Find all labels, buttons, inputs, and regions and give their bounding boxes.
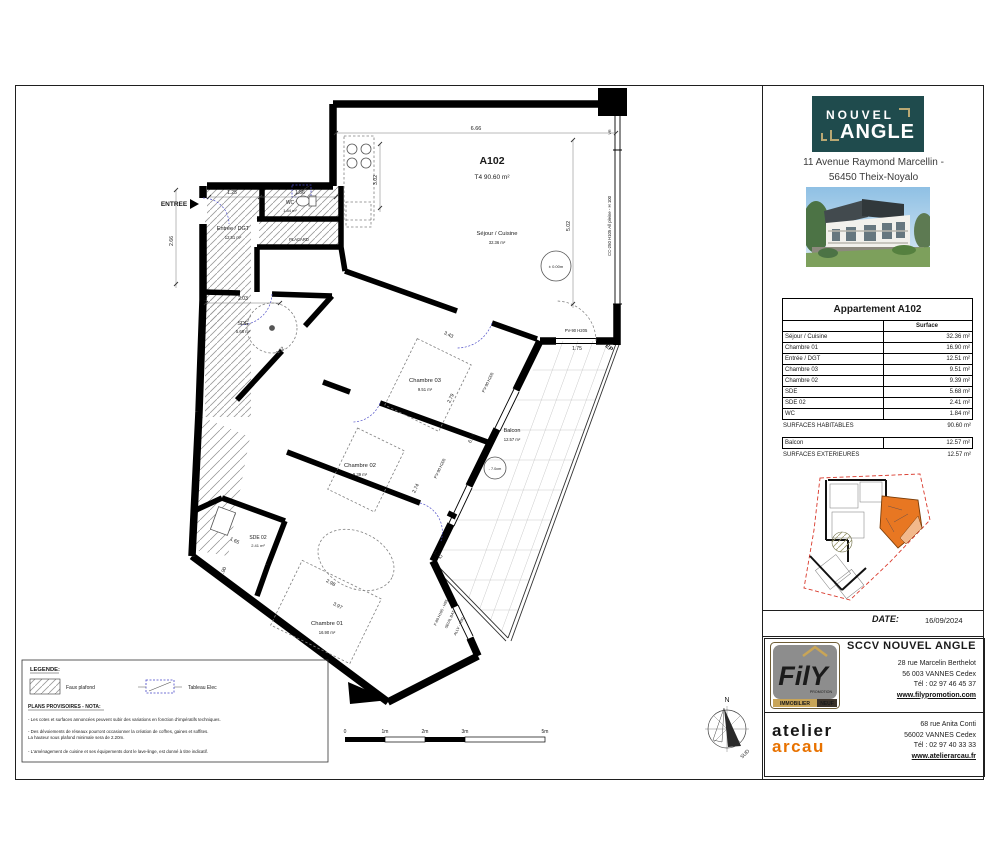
scale-bar: 0 1m 2m 3m 5m — [344, 729, 549, 742]
level-sejour: ± 0.00m — [549, 264, 564, 269]
corner-bracket-icon — [899, 108, 910, 117]
svg-text:Chambre 02: Chambre 02 — [344, 463, 376, 469]
svg-text:3.97: 3.97 — [332, 601, 344, 611]
nouvel-angle-logo: NOUVEL ANGLE — [812, 96, 924, 152]
svg-text:2.74: 2.74 — [411, 483, 421, 495]
fily-logo: FilY PROMOTION IMMOBILIER NEUF — [769, 641, 841, 710]
entry-arrow: ENTREE — [161, 199, 199, 209]
svg-text:PV-90 H205: PV-90 H205 — [565, 328, 588, 333]
fily-website-link[interactable]: www.filypromotion.com — [843, 691, 976, 702]
svg-text:12.51 m²: 12.51 m² — [225, 235, 242, 240]
svg-text:SUD: SUD — [739, 748, 751, 760]
balcony-row: Balcon 12.57 m² — [783, 438, 972, 448]
l-bracket-icon — [830, 130, 839, 141]
svg-text:FilY: FilY — [778, 661, 830, 691]
surfaces-habitables-row: SURFACES HABITABLES90.60 m² — [782, 420, 973, 432]
tableau-elec-label: Tableau Elec — [188, 685, 217, 691]
svg-text:PV-90 H205: PV-90 H205 — [433, 457, 447, 479]
legend-title: LEGENDE: — [30, 667, 60, 673]
svg-text:SDE 02: SDE 02 — [249, 535, 266, 541]
svg-text:Balcon: Balcon — [504, 428, 521, 434]
svg-text:WC: WC — [286, 200, 295, 206]
surfaces-exterieures-row: SURFACES EXTERIEURES12.57 m² — [782, 449, 973, 461]
table-row: Séjour / Cuisine32.36 m² — [783, 332, 972, 343]
north-compass-icon: N SUD — [705, 697, 751, 760]
svg-text:- L'aménagement de cuisine et: - L'aménagement de cuisine et ses équipe… — [28, 749, 208, 754]
table-row: Entrée / DGT12.51 m² — [783, 354, 972, 365]
table-row: Chambre 0116.90 m² — [783, 343, 972, 354]
table-row: Chambre 039.51 m² — [783, 365, 972, 376]
table-row: SDE5.68 m² — [783, 387, 972, 398]
arcau-website-link[interactable]: www.atelierarcau.fr — [843, 752, 976, 763]
svg-text:- Des dévoiements de réseaux p: - Des dévoiements de réseaux pourront oc… — [28, 729, 208, 734]
svg-text:3.02: 3.02 — [275, 346, 286, 357]
tableau-elec-swatch — [138, 680, 182, 693]
svg-text:5.68 m²: 5.68 m² — [236, 329, 251, 334]
svg-text:12.57 m²: 12.57 m² — [504, 437, 521, 442]
table-row: Chambre 029.39 m² — [783, 376, 972, 387]
titleblock-divider — [762, 85, 763, 779]
svg-text:La hauteur sous plafond minima: La hauteur sous plafond minimale sera de… — [28, 735, 124, 740]
svg-text:CC-250 H105 All pleine - H 100: CC-250 H105 All pleine - H 100 — [607, 195, 612, 256]
svg-text:6.66: 6.66 — [471, 126, 482, 132]
building-photo — [806, 187, 930, 267]
surface-table: Appartement A102 Surface Séjour / Cuisin… — [782, 298, 973, 461]
svg-text:32.36 m²: 32.36 m² — [489, 240, 506, 245]
svg-text:IMMOBILIER: IMMOBILIER — [780, 701, 810, 707]
svg-text:1.84 m²: 1.84 m² — [283, 208, 297, 213]
table-row: WC1.84 m² — [783, 409, 972, 420]
l-bracket-icon — [821, 133, 827, 141]
svg-text:SEUIL BAT: SEUIL BAT — [444, 610, 456, 630]
date-row-top-line — [762, 610, 983, 611]
brand-line2: ANGLE — [840, 123, 915, 141]
site-key-plan — [790, 470, 960, 608]
svg-text:0: 0 — [344, 729, 347, 735]
svg-text:2.41 m²: 2.41 m² — [251, 543, 265, 548]
entry-arrow-icon — [190, 199, 199, 209]
svg-text:1.25: 1.25 — [227, 190, 237, 196]
svg-text:NEUF: NEUF — [820, 701, 834, 707]
svg-text:9.39 m²: 9.39 m² — [353, 472, 368, 477]
svg-text:3.43: 3.43 — [443, 330, 455, 340]
level-balcon: - 7.0cm — [489, 467, 502, 471]
svg-text:1.65: 1.65 — [229, 536, 241, 546]
corner-wall-block — [598, 88, 627, 116]
balcony — [400, 341, 660, 641]
date-value: 16/09/2024 — [925, 616, 963, 625]
svg-text:Chambre 03: Chambre 03 — [409, 378, 441, 384]
svg-text:2.79: 2.79 — [446, 393, 456, 405]
svg-text:PV-90 H205: PV-90 H205 — [481, 371, 495, 393]
surface-table-title: Appartement A102 — [782, 298, 973, 321]
svg-text:1m: 1m — [382, 729, 389, 735]
svg-text:9.51 m²: 9.51 m² — [418, 387, 433, 392]
svg-text:2.03: 2.03 — [238, 296, 248, 302]
nota-title: PLANS PROVISOIRES - NOTA: — [28, 704, 101, 710]
svg-text:1.75: 1.75 — [572, 346, 582, 352]
project-address: 11 Avenue Raymond Marcellin - 56450 Thei… — [772, 156, 975, 185]
svg-text:- Les cotes et surfaces annonc: - Les cotes et surfaces annoncées peuven… — [28, 717, 221, 722]
sccv-company-name: SCCV NOUVEL ANGLE — [843, 640, 980, 652]
balcony-door-arc — [556, 301, 596, 341]
fily-address: 28 rue Marcelin Berthelot 56 003 VANNES … — [843, 659, 976, 701]
svg-text:.90: .90 — [220, 566, 229, 575]
svg-text:PROMOTION: PROMOTION — [810, 690, 833, 694]
svg-text:SDE: SDE — [237, 321, 249, 327]
svg-text:ALLV - H90: ALLV - H90 — [453, 617, 465, 636]
arcau-address: 68 rue Anita Conti 56002 VANNES Cedex Té… — [843, 720, 976, 762]
legend-box: LEGENDE: Faux plafond Tableau Elec PLANS… — [22, 660, 328, 762]
svg-text:Séjour / Cuisine: Séjour / Cuisine — [477, 231, 518, 237]
table-row: SDE 022.41 m² — [783, 398, 972, 409]
svg-text:3m: 3m — [462, 729, 469, 735]
unit-id: A102 — [479, 155, 504, 167]
date-row-bottom-line — [762, 636, 983, 637]
svg-text:VR: VR — [608, 129, 612, 135]
drawing-sheet: { "colors": { "teal": "#1F4B4D", "gold":… — [0, 0, 1000, 857]
unit-type: T4 90.60 m² — [474, 174, 510, 181]
svg-text:2m: 2m — [422, 729, 429, 735]
faux-plafond-label: Faux plafond — [66, 685, 95, 691]
svg-text:16.90 m²: 16.90 m² — [319, 630, 336, 635]
svg-text:3.02: 3.02 — [373, 175, 379, 185]
svg-text:N: N — [724, 697, 729, 704]
faux-plafond-swatch — [30, 679, 60, 694]
svg-text:Chambre 01: Chambre 01 — [311, 621, 343, 627]
brand-line1: NOUVEL — [826, 108, 894, 122]
atelier-arcau-logo: atelier arcau — [772, 723, 833, 755]
svg-text:1.56: 1.56 — [295, 190, 305, 196]
svg-text:Entrée / DGT: Entrée / DGT — [217, 226, 250, 232]
floor-plan: ENTREE A102 T4 90.60 m² Séjour / Cuisine… — [15, 85, 762, 779]
date-label: DATE: — [872, 614, 899, 624]
placard-label: PLACARD — [289, 237, 309, 242]
svg-text:ENTREE: ENTREE — [161, 201, 188, 208]
surface-column-header: Surface — [884, 321, 972, 331]
svg-text:2.66: 2.66 — [169, 236, 175, 246]
svg-text:5.02: 5.02 — [566, 221, 572, 231]
svg-text:5m: 5m — [542, 729, 549, 735]
